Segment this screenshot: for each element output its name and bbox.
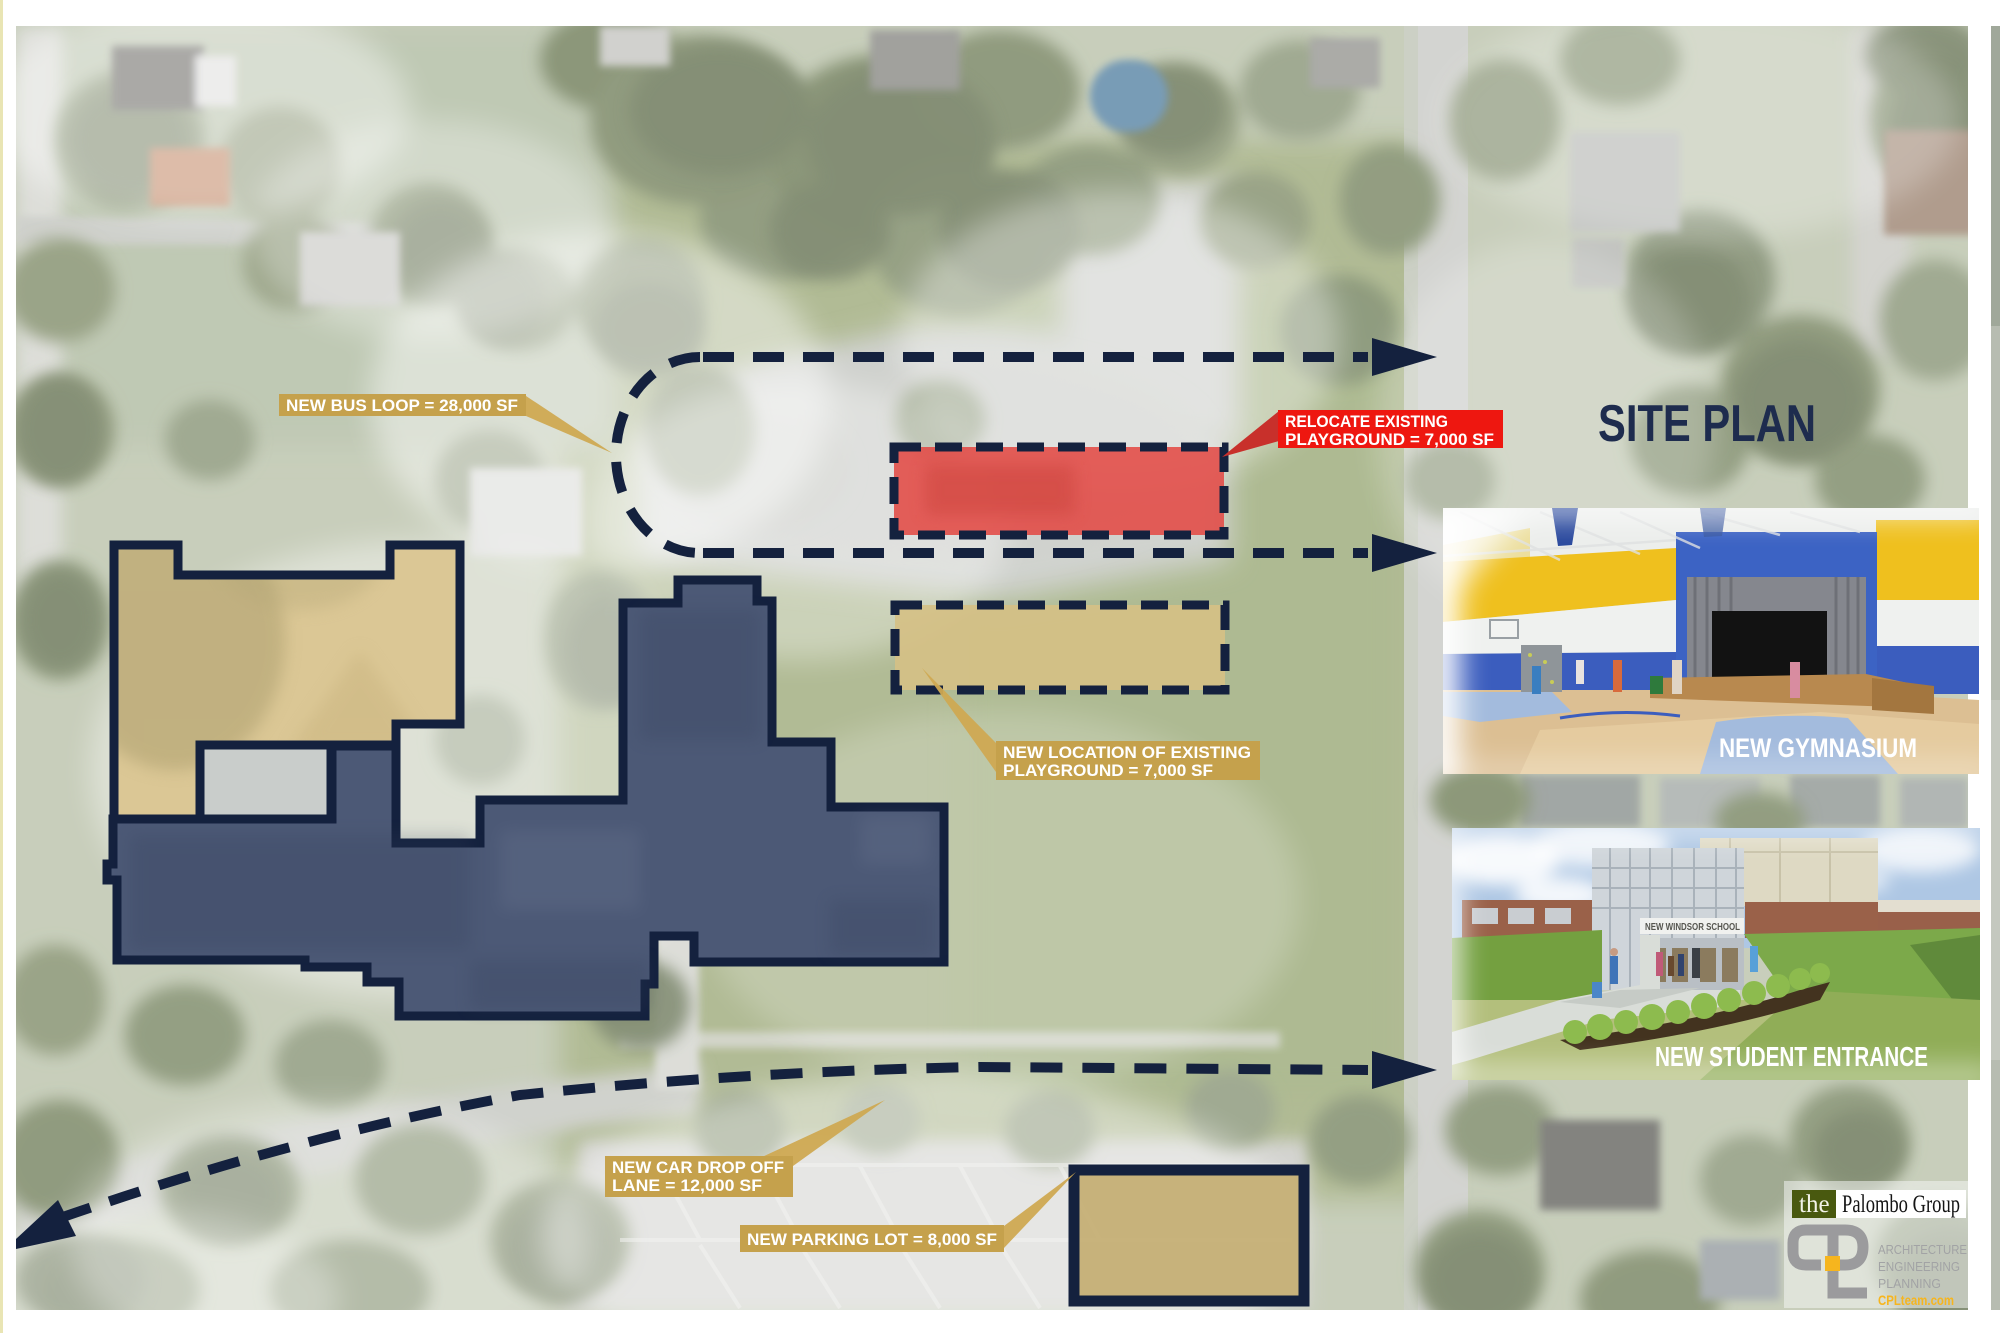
svg-text:NEW STUDENT ENTRANCE: NEW STUDENT ENTRANCE bbox=[1655, 1041, 1928, 1072]
svg-text:NEW LOCATION OF EXISTING: NEW LOCATION OF EXISTING bbox=[1003, 743, 1251, 762]
svg-text:RELOCATE EXISTING: RELOCATE EXISTING bbox=[1285, 412, 1448, 431]
svg-text:SITE PLAN: SITE PLAN bbox=[1598, 395, 1816, 453]
svg-text:NEW BUS LOOP = 28,000 SF: NEW BUS LOOP = 28,000 SF bbox=[286, 396, 518, 415]
svg-text:NEW WINDSOR SCHOOL: NEW WINDSOR SCHOOL bbox=[1645, 922, 1740, 933]
svg-text:CPLteam.com: CPLteam.com bbox=[1878, 1292, 1954, 1308]
svg-text:NEW CAR DROP OFF: NEW CAR DROP OFF bbox=[612, 1158, 784, 1177]
svg-text:PLANNING: PLANNING bbox=[1878, 1276, 1941, 1291]
svg-text:ARCHITECTURE: ARCHITECTURE bbox=[1878, 1242, 1967, 1257]
svg-text:the: the bbox=[1799, 1191, 1830, 1218]
svg-text:NEW GYMNASIUM: NEW GYMNASIUM bbox=[1719, 733, 1917, 763]
svg-text:PLAYGROUND = 7,000 SF: PLAYGROUND = 7,000 SF bbox=[1285, 430, 1494, 449]
svg-text:PLAYGROUND = 7,000 SF: PLAYGROUND = 7,000 SF bbox=[1003, 761, 1213, 780]
svg-text:NEW PARKING LOT = 8,000 SF: NEW PARKING LOT = 8,000 SF bbox=[747, 1230, 997, 1249]
svg-text:LANE = 12,000 SF: LANE = 12,000 SF bbox=[612, 1176, 762, 1195]
svg-text:ENGINEERING: ENGINEERING bbox=[1878, 1259, 1960, 1274]
svg-text:Palombo Group: Palombo Group bbox=[1842, 1191, 1960, 1218]
